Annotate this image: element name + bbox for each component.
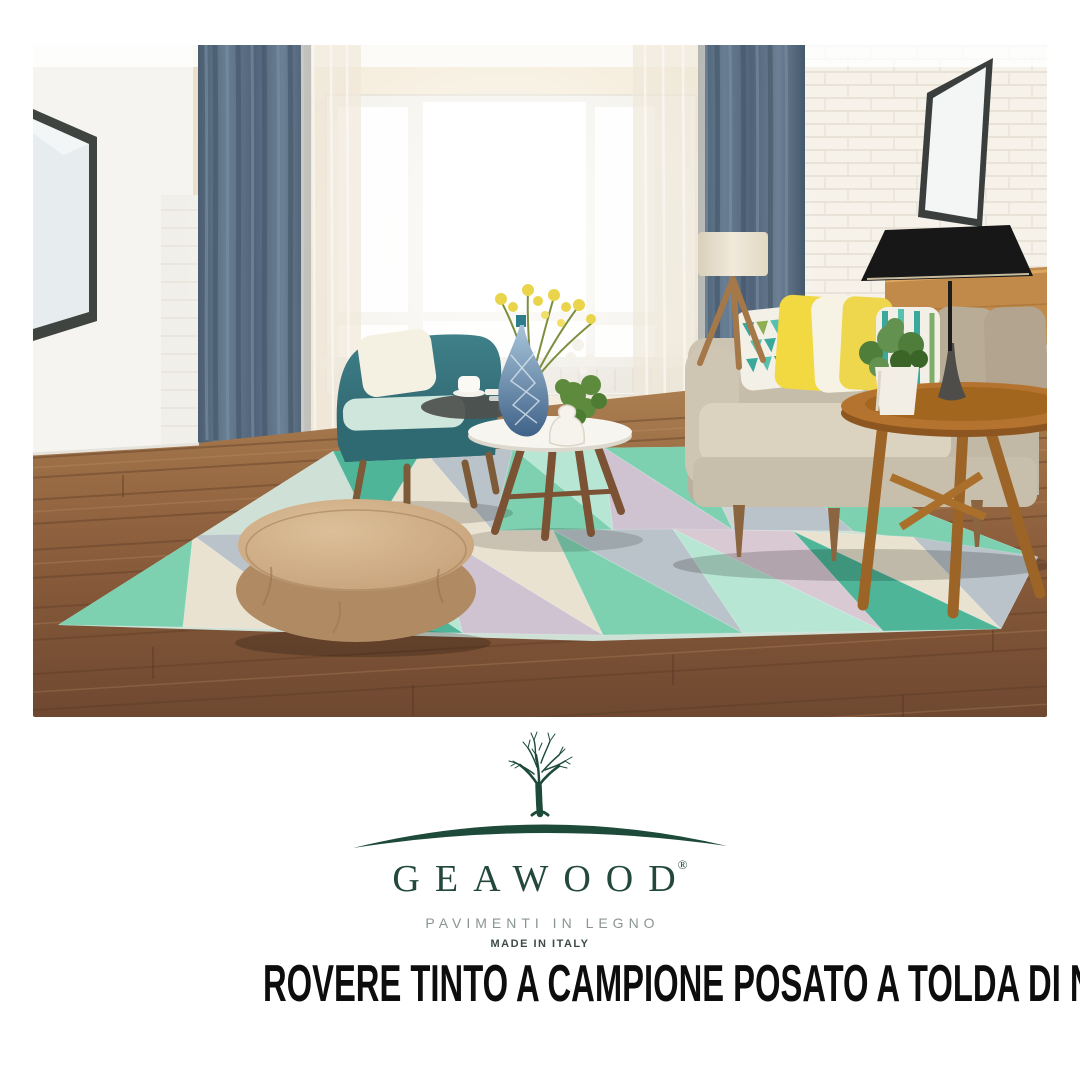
teacup — [458, 376, 480, 392]
lamp-stem — [948, 281, 952, 351]
tree-over-hill-icon — [330, 722, 750, 850]
brand-tagline: PAVIMENTI IN LEGNO — [0, 915, 1080, 931]
tree-icon — [509, 732, 572, 815]
plant-pot — [875, 367, 919, 415]
living-room-scene — [33, 45, 1047, 717]
armchair-pillow — [356, 327, 438, 399]
brand-name: GEAWOOD — [392, 858, 690, 900]
wall-mirror-frame — [33, 109, 97, 341]
living-room-photo — [33, 45, 1047, 717]
floor-lamp-shade — [698, 232, 768, 276]
sofa-front — [693, 457, 1037, 507]
brand-row: GEAWOOD® — [0, 846, 1080, 906]
left-curtain — [198, 45, 311, 445]
lamp-shade — [861, 225, 1033, 281]
round-pouf — [235, 499, 491, 657]
headline-text: ROVERE TINTO A CAMPIONE POSATO A TOLDA D… — [263, 956, 1080, 1012]
poster: GEAWOOD® PAVIMENTI IN LEGNO MADE IN ITAL… — [0, 0, 1080, 1080]
registered-mark: ® — [678, 857, 688, 872]
hill-arc — [353, 824, 727, 848]
brand-logo: GEAWOOD® PAVIMENTI IN LEGNO MADE IN ITAL… — [0, 722, 1080, 950]
headline: ROVERE TINTO A CAMPIONE POSATO A TOLDA D… — [0, 956, 1080, 1012]
made-in-italy: MADE IN ITALY — [0, 938, 1080, 950]
